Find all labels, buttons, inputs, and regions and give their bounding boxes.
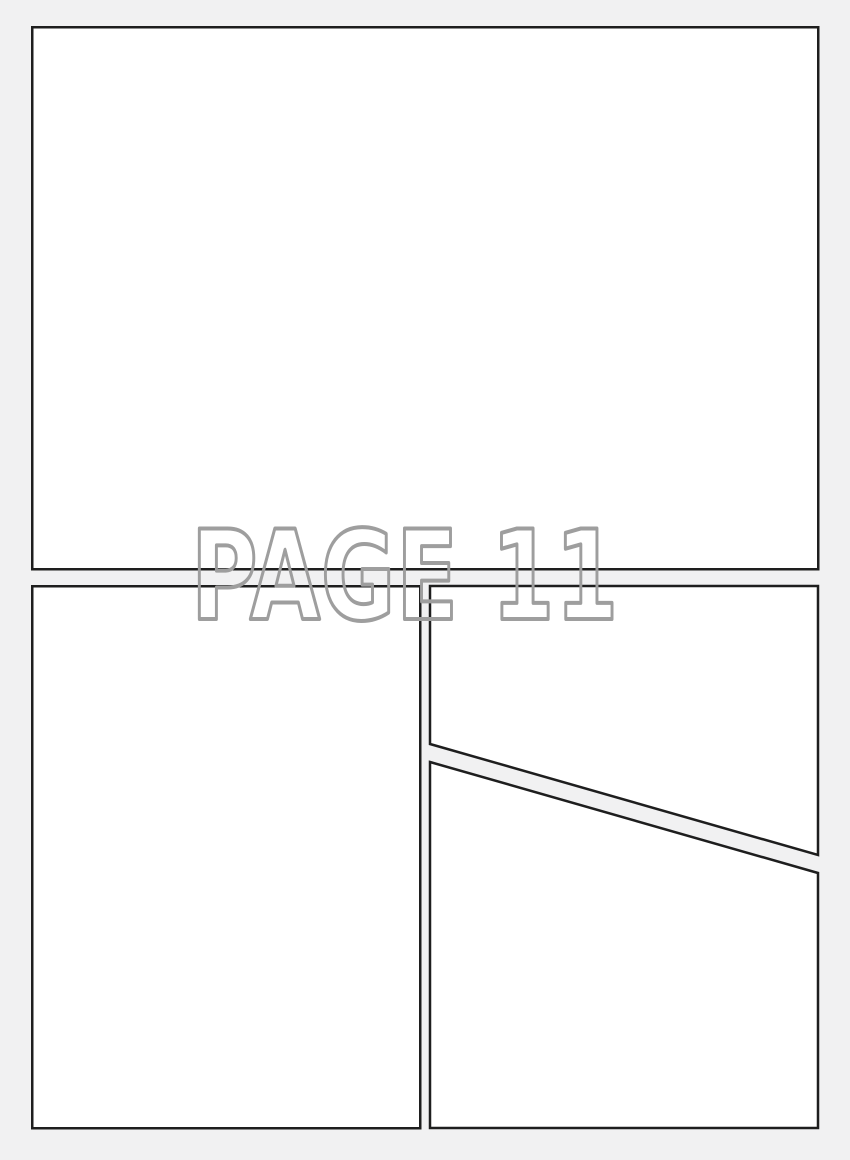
comic-page-template: PAGE 11: [0, 0, 850, 1160]
page-number-watermark: PAGE 11: [191, 505, 619, 649]
panel-bottom-left: [32, 586, 420, 1128]
panel-top: [32, 27, 818, 569]
